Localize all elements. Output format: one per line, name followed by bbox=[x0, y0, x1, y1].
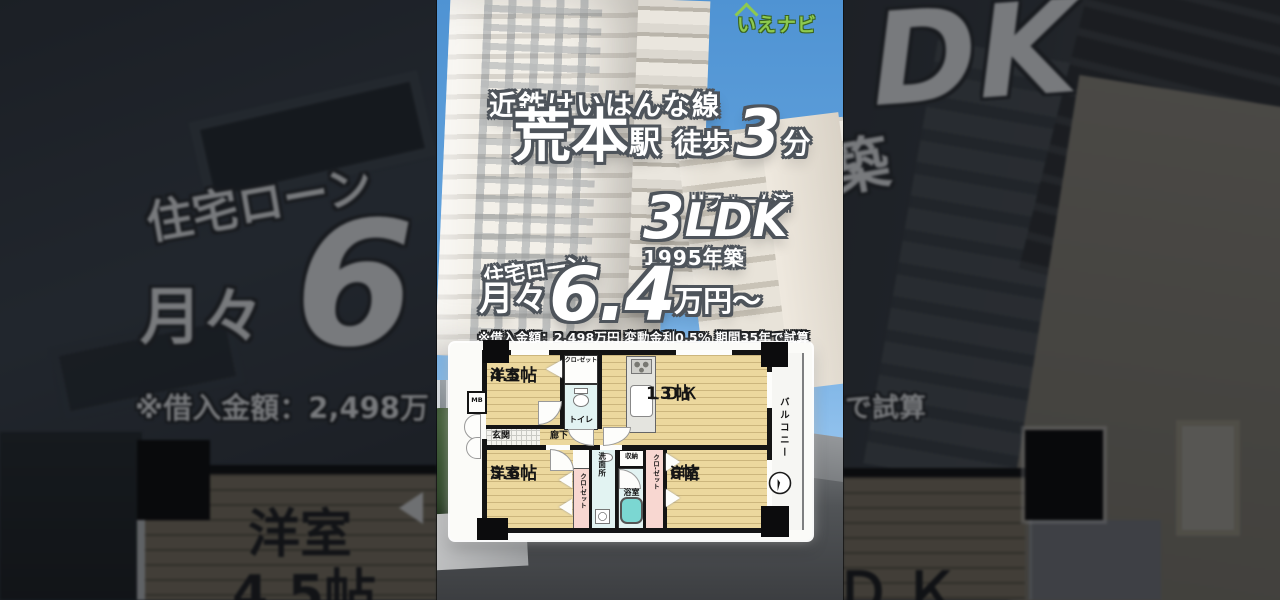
toilet-icon bbox=[573, 394, 589, 407]
storage-label: 収納 bbox=[619, 453, 644, 460]
walk-label: 徒歩 bbox=[674, 122, 730, 165]
wall bbox=[486, 425, 564, 429]
left-dim-overlay bbox=[0, 0, 437, 600]
station-suffix: 駅 bbox=[629, 117, 660, 165]
video-frame: 住宅ローン 月々 6 ※借入金額：2,498万 洋室 4.5帖 bbox=[0, 0, 1280, 600]
entrance-label: 玄関 bbox=[492, 431, 510, 441]
entrance-door-arc bbox=[466, 437, 481, 459]
background-left: 住宅ローン 月々 6 ※借入金額：2,498万 洋室 4.5帖 bbox=[0, 0, 437, 600]
loan-monthly-label: 月々 bbox=[479, 271, 547, 327]
hall-label: 廊下 bbox=[550, 431, 568, 441]
closet-label-top: クロ-ゼット bbox=[564, 358, 598, 365]
right-dim-overlay bbox=[843, 0, 1280, 600]
closet-label-b: クロ-ゼット bbox=[651, 454, 658, 489]
closet-door-wedge bbox=[666, 489, 680, 507]
video-content: いえナビ 近鉄けいはんな線 荒本 駅 徒歩 3 分 リフォーム済 3 LDK 1… bbox=[437, 0, 843, 600]
meter-box-label: MB bbox=[467, 397, 487, 404]
walk-minutes-unit: 分 bbox=[783, 122, 811, 165]
wall bbox=[486, 445, 768, 450]
toilet-label: トイレ bbox=[564, 415, 598, 424]
layout-number: 3 bbox=[643, 191, 685, 245]
closet-door-wedge bbox=[559, 472, 572, 488]
bath-label: 浴室 bbox=[618, 488, 645, 497]
loan-unit: 万円〜 bbox=[674, 278, 761, 327]
washing-machine-icon bbox=[595, 509, 610, 524]
closet-door-wedge bbox=[546, 360, 562, 378]
bathtub-icon bbox=[620, 497, 643, 524]
station-headline: 荒本 駅 徒歩 3 分 bbox=[513, 104, 811, 165]
corner-pillar bbox=[483, 340, 509, 363]
station-name: 荒本 bbox=[513, 107, 629, 165]
window-opening bbox=[510, 350, 550, 355]
loan-amount: 6.4 bbox=[549, 264, 674, 327]
closet-door-wedge bbox=[559, 499, 572, 515]
walk-minutes: 3 bbox=[736, 104, 781, 165]
window-opening bbox=[767, 371, 772, 409]
corner-pillar bbox=[761, 342, 788, 367]
layout-letters: LDK bbox=[685, 197, 788, 245]
balcony-label: バルコニー bbox=[777, 397, 788, 460]
window-opening bbox=[675, 350, 733, 355]
loan-amount-row: 月々 6.4 万円〜 bbox=[479, 264, 761, 327]
stove-icon bbox=[631, 359, 652, 374]
corner-pillar bbox=[761, 506, 789, 537]
corner-pillar bbox=[477, 518, 508, 540]
wall bbox=[589, 449, 592, 529]
washroom-label: 洗面所 bbox=[597, 452, 606, 478]
layout-headline: 3 LDK bbox=[643, 191, 788, 245]
closet-label-a: クロ-ゼット bbox=[578, 473, 585, 508]
floorplan: 洋室 4.5帖 ＬＤＫ 13帖 洋室 5.6帖 洋室 6帖 バルコニー トイレ … bbox=[450, 341, 812, 542]
channel-logo: いえナビ bbox=[737, 10, 817, 37]
wall bbox=[482, 528, 772, 533]
wall bbox=[598, 355, 602, 429]
compass-icon bbox=[768, 471, 792, 495]
background-right: DK 築 で試算 ＤＫ bbox=[843, 0, 1280, 600]
